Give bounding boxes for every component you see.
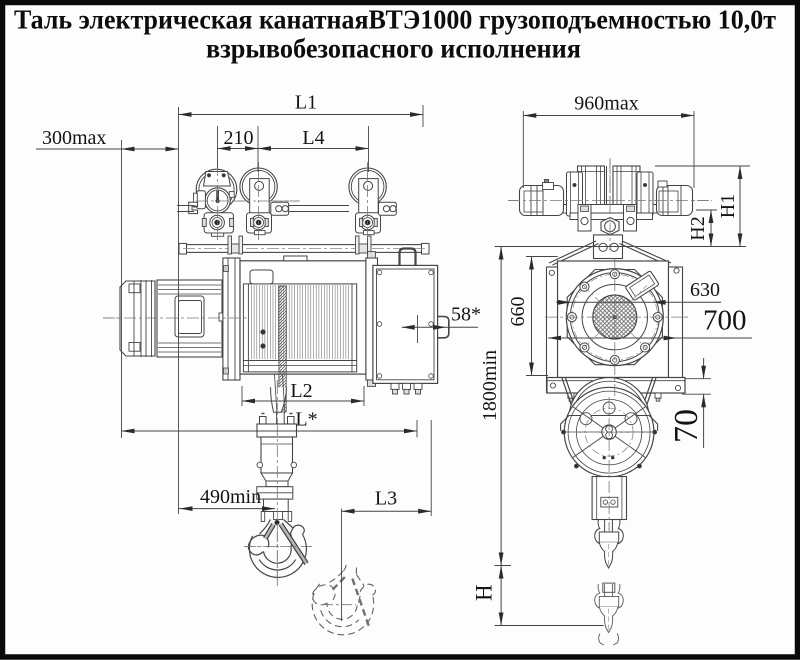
svg-text:300max: 300max <box>42 127 106 149</box>
svg-text:L1: L1 <box>295 92 317 114</box>
svg-text:H1: H1 <box>717 194 739 218</box>
svg-text:490min: 490min <box>200 486 261 508</box>
svg-text:70: 70 <box>668 409 705 443</box>
svg-text:960max: 960max <box>574 93 638 115</box>
svg-text:660: 660 <box>507 297 529 327</box>
svg-text:L3: L3 <box>375 488 397 510</box>
svg-text:H: H <box>472 584 497 601</box>
svg-text:700: 700 <box>703 305 747 337</box>
svg-text:58*: 58* <box>451 304 481 326</box>
svg-text:L4: L4 <box>302 127 324 149</box>
svg-text:210: 210 <box>224 127 254 149</box>
svg-text:H2: H2 <box>687 216 709 240</box>
svg-text:1800min: 1800min <box>479 350 501 421</box>
svg-text:L*: L* <box>295 409 317 431</box>
svg-text:Таль электрическая канатнаяВТЭ: Таль электрическая канатнаяВТЭ1000 грузо… <box>14 5 776 35</box>
svg-text:взрывобезопасного исполнения: взрывобезопасного исполнения <box>206 34 581 64</box>
svg-text:630: 630 <box>690 279 720 301</box>
svg-text:L2: L2 <box>290 380 312 402</box>
